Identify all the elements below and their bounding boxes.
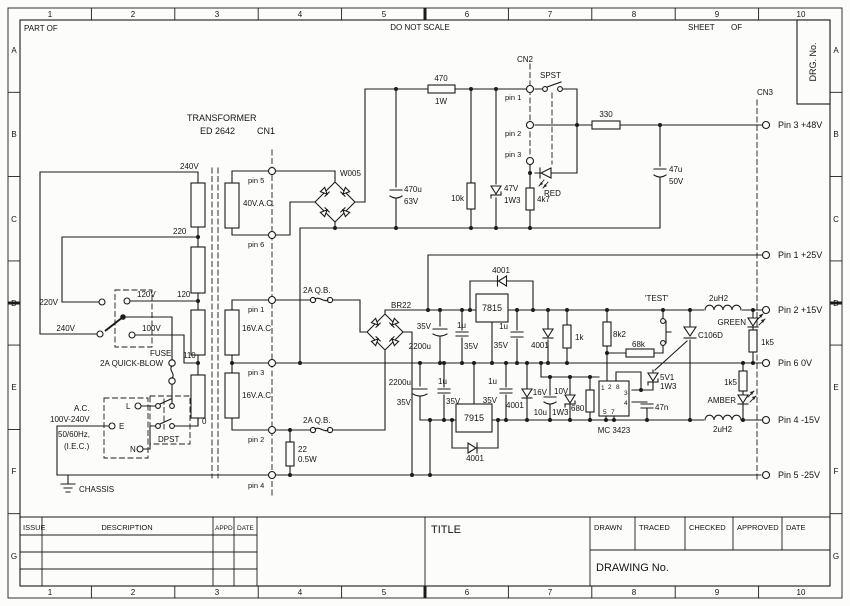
label-z47v: 47V xyxy=(504,184,519,193)
drawing-sheet: 1 2 3 4 5 6 7 8 9 10 1 2 3 4 5 6 7 8 9 1… xyxy=(0,0,850,606)
zone-row-b2: B xyxy=(833,130,838,139)
label-live: L xyxy=(126,402,131,411)
fuse-2a-qb-bottom xyxy=(310,427,332,432)
label-z10v-w: 1W3 xyxy=(552,408,569,417)
label-v35-f: 35V xyxy=(483,396,498,405)
label-fuse-qb-top: 2A Q.B. xyxy=(303,286,331,295)
zone-row-c2: C xyxy=(833,215,839,224)
title-header: TITLE xyxy=(431,524,461,536)
green-led xyxy=(748,314,765,327)
label-neutral: N xyxy=(130,445,136,454)
label-r680: 680 xyxy=(571,404,585,413)
capacitor-47n xyxy=(641,404,653,408)
voltage-selector xyxy=(97,298,135,338)
zone-col-2b: 2 xyxy=(131,588,136,597)
zone-col-7: 7 xyxy=(548,10,553,19)
label-r22: 22 xyxy=(298,445,307,454)
label-ac: A.C. xyxy=(74,404,90,413)
label-tap-240: 240V xyxy=(180,162,199,171)
zone-row-f: F xyxy=(12,467,17,476)
label-4001-a: 4001 xyxy=(492,266,510,275)
zone-col-1b: 1 xyxy=(48,588,53,597)
resistor-22r xyxy=(286,442,294,466)
label-cn2-pin3: pin 3 xyxy=(505,150,521,159)
zone-col-9b: 9 xyxy=(715,588,720,597)
zone-col-5b: 5 xyxy=(382,588,387,597)
label-test: 'TEST' xyxy=(645,294,669,303)
label-v63: 63V xyxy=(404,197,419,206)
label-4001-c: 4001 xyxy=(466,454,484,463)
sheet-label: SHEET xyxy=(688,23,715,32)
label-c47n: 47n xyxy=(655,403,668,412)
capacitor-1u-neg2 xyxy=(500,389,512,393)
description-header: DESCRIPTION xyxy=(101,523,152,532)
resistor-1k5-green xyxy=(749,330,757,352)
zone-row-f2: F xyxy=(834,467,839,476)
label-r68k: 68k xyxy=(632,340,646,349)
zone-col-8b: 8 xyxy=(632,588,637,597)
label-out-m15v: Pin 4 -15V xyxy=(778,415,820,425)
label-r330: 330 xyxy=(599,110,613,119)
circuit-components xyxy=(61,82,770,492)
checked-header: CHECKED xyxy=(689,523,726,532)
label-dpst: DPST xyxy=(158,435,179,444)
label-r22-w: 0.5W xyxy=(298,455,317,464)
label-mc-pin7: 7 xyxy=(611,409,615,416)
label-r10k: 10k xyxy=(451,194,465,203)
date-header: DATE xyxy=(237,525,255,532)
label-cn1: CN1 xyxy=(257,126,275,136)
zone-col-8: 8 xyxy=(632,10,637,19)
label-c47u: 47u xyxy=(669,165,682,174)
zone-col-5: 5 xyxy=(382,10,387,19)
of-label: OF xyxy=(731,23,742,32)
chassis-ground-symbol xyxy=(61,475,75,492)
mains-fuse xyxy=(169,360,175,384)
label-mc-pin5: 5 xyxy=(603,409,607,416)
drawn-header: DRAWN xyxy=(594,523,622,532)
label-cn2-pin1: pin 1 xyxy=(505,93,521,102)
zone-row-e: E xyxy=(11,383,16,392)
label-cn1-pin4: pin 4 xyxy=(248,481,264,490)
inductor-2uh2-bottom xyxy=(704,414,742,425)
resistor-330r xyxy=(592,121,620,129)
label-amber: AMBER xyxy=(708,396,737,405)
zone-col-6b: 6 xyxy=(465,588,470,597)
zone-row-e2: E xyxy=(833,383,838,392)
label-tap-120: 120 xyxy=(177,290,191,299)
diode-4001-neg xyxy=(522,389,532,398)
label-sel-100: 100V xyxy=(142,324,161,333)
label-out-48v: Pin 3 +48V xyxy=(778,120,822,130)
label-c1u-a: 1u xyxy=(457,321,466,330)
transformer-core-line xyxy=(212,168,218,478)
label-ac-range: 100V-240V xyxy=(50,415,90,424)
resistor-4k7 xyxy=(526,188,534,210)
resistor-8k2 xyxy=(603,322,611,346)
fuse-2a-qb-top xyxy=(310,297,332,302)
zone-row-a: A xyxy=(11,46,17,55)
spst-switch xyxy=(543,82,563,91)
circuit-wires xyxy=(40,64,762,495)
label-red: RED xyxy=(544,189,561,198)
schematic-svg: 1 2 3 4 5 6 7 8 9 10 1 2 3 4 5 6 7 8 9 1… xyxy=(0,0,850,606)
zone-row-a2: A xyxy=(833,46,839,55)
label-mc-pin1: 1 xyxy=(601,385,605,392)
label-transformer: TRANSFORMER xyxy=(187,113,257,123)
label-cn2-pin2: pin 2 xyxy=(505,129,521,138)
inductor-2uh2-top xyxy=(704,304,742,315)
drawing-no-label: DRAWING No. xyxy=(596,562,669,574)
capacitor-2200u-neg xyxy=(413,389,427,396)
label-r1k5-green: 1k5 xyxy=(761,338,774,347)
label-cn1-pin5: pin 5 xyxy=(248,176,264,185)
label-c106d: C106D xyxy=(698,331,723,340)
label-fuse-qb-bottom: 2A Q.B. xyxy=(303,416,331,425)
zone-row-c: C xyxy=(11,215,17,224)
label-c2200u-pos: 2200u xyxy=(409,342,431,351)
resistor-68k xyxy=(626,349,654,357)
thyristor-c106d xyxy=(684,327,696,338)
issue-header: ISSUE xyxy=(23,523,46,532)
diode-4001-pos xyxy=(543,329,553,338)
zone-col-6: 6 xyxy=(465,10,470,19)
zone-row-d2: D xyxy=(833,299,839,308)
label-transformer-model: ED 2642 xyxy=(200,126,235,136)
zone-col-1: 1 xyxy=(48,10,53,19)
zone-row-g: G xyxy=(11,552,17,561)
dpst-switch xyxy=(156,399,175,429)
label-7915: 7915 xyxy=(464,413,484,423)
capacitor-1u-pos1 xyxy=(456,332,468,336)
drawing-frame: 1 2 3 4 5 6 7 8 9 10 1 2 3 4 5 6 7 8 9 1… xyxy=(8,8,842,598)
label-2uh2-bottom: 2uH2 xyxy=(713,425,733,434)
label-mc-pin3: 3 xyxy=(624,390,628,397)
label-w005: W005 xyxy=(340,169,361,178)
label-cn1-pin6: pin 6 xyxy=(248,240,264,249)
capacitor-470u-63v xyxy=(390,190,402,198)
zone-row-g2: G xyxy=(833,552,839,561)
label-c470u: 470u xyxy=(404,185,422,194)
capacitor-47u-50v xyxy=(654,169,666,177)
label-r470-w: 1W xyxy=(435,97,447,106)
label-mc3423: MC 3423 xyxy=(598,426,631,435)
label-cn1-pin1: pin 1 xyxy=(248,305,264,314)
label-mc-pin8: 8 xyxy=(616,384,620,391)
label-r470: 470 xyxy=(434,74,448,83)
label-mc-pin2: 2 xyxy=(608,384,612,391)
traced-header: TRACED xyxy=(639,523,670,532)
label-cn1-pin3: pin 3 xyxy=(248,368,264,377)
resistor-1k5-amber xyxy=(739,371,747,391)
label-tap-110: 110 xyxy=(183,351,196,360)
resistor-1k xyxy=(563,325,571,348)
label-z47v-w: 1W3 xyxy=(504,196,521,205)
label-7815: 7815 xyxy=(482,303,502,313)
test-button xyxy=(661,319,671,346)
label-br22: BR22 xyxy=(391,301,412,310)
zone-col-3: 3 xyxy=(215,10,220,19)
label-z5v1: 5V1 xyxy=(660,373,675,382)
amber-led xyxy=(738,391,756,404)
label-w16a: 16V.A.C. xyxy=(242,324,273,333)
approved-header: APPROVED xyxy=(737,523,779,532)
diode-4001-7915-bypass xyxy=(468,443,477,453)
label-ac-std: (I.E.C.) xyxy=(64,442,90,451)
label-cn1-pin2: pin 2 xyxy=(248,435,264,444)
label-v35-e: 35V xyxy=(446,397,461,406)
label-c10u: 10u xyxy=(534,408,547,417)
title-block: ISSUE DESCRIPTION APPD DATE TITLE DRAWN … xyxy=(20,517,830,586)
label-4001-b: 4001 xyxy=(531,341,549,350)
label-r8k2: 8k2 xyxy=(613,330,626,339)
label-chassis: CHASSIS xyxy=(79,485,114,494)
label-z10v: 10V xyxy=(554,387,569,396)
label-sel-120: 120V xyxy=(137,290,156,299)
zone-row-d: D xyxy=(11,299,17,308)
label-sel-220: 220V xyxy=(39,298,58,307)
bridge-rectifier-br22 xyxy=(367,314,403,350)
part-of-label: PART OF xyxy=(24,24,58,33)
label-mc-pin4: 4 xyxy=(624,400,628,407)
label-out-25v: Pin 1 +25V xyxy=(778,250,822,260)
label-green: GREEN xyxy=(718,318,747,327)
label-tap-0: 0 xyxy=(202,417,207,426)
zone-col-3b: 3 xyxy=(215,588,220,597)
zone-col-7b: 7 xyxy=(548,588,553,597)
appd-header: APPD xyxy=(215,525,233,532)
resistor-10k xyxy=(467,183,475,209)
zone-col-9: 9 xyxy=(715,10,720,19)
label-out-0v: Pin 6 0V xyxy=(778,358,812,368)
label-fuse-rating: 2A QUICK-BLOW xyxy=(100,359,164,368)
label-earth: E xyxy=(119,422,124,431)
label-out-15v: Pin 2 +15V xyxy=(778,305,822,315)
label-z5v1-w: 1W3 xyxy=(660,382,677,391)
zone-col-4: 4 xyxy=(298,10,303,19)
label-ac-freq: 50/60Hz, xyxy=(58,430,90,439)
bridge-rectifier-w005 xyxy=(315,182,355,222)
do-not-scale-label: DO NOT SCALE xyxy=(390,23,449,32)
label-c2200u-neg: 2200u xyxy=(389,378,411,387)
capacitor-1u-pos2 xyxy=(511,332,523,337)
label-r1k5-amber: 1k5 xyxy=(724,378,737,387)
capacitor-1u-neg1 xyxy=(438,389,450,393)
drg-no-label: DRG. No. xyxy=(808,42,818,81)
label-cn3: CN3 xyxy=(757,88,774,97)
label-sel-240: 240V xyxy=(56,324,75,333)
resistor-680r xyxy=(586,390,594,412)
zone-row-b: B xyxy=(11,130,16,139)
label-tap-220: 220 xyxy=(173,227,187,236)
cn3-connector-pins xyxy=(763,122,770,479)
zener-47v-1w3 xyxy=(491,186,501,198)
label-c1u-b: 1u xyxy=(499,322,508,331)
label-v35-a: 35V xyxy=(417,322,432,331)
diode-4001-7815-bypass xyxy=(498,276,507,286)
capacitor-2200u-pos xyxy=(433,329,447,336)
label-v35-d: 35V xyxy=(397,398,412,407)
zone-col-10b: 10 xyxy=(797,588,806,597)
label-c1u-d: 1u xyxy=(488,377,497,386)
label-v35-c: 35V xyxy=(494,341,509,350)
zone-col-2: 2 xyxy=(131,10,136,19)
label-4001-d: 4001 xyxy=(506,401,524,410)
label-v50: 50V xyxy=(669,177,684,186)
label-w16b: 16V.A.C. xyxy=(242,391,273,400)
label-fuse: FUSE xyxy=(150,349,171,358)
date2-header: DATE xyxy=(786,523,805,532)
zone-col-10: 10 xyxy=(797,10,806,19)
label-out-m25v: Pin 5 -25V xyxy=(778,470,820,480)
label-v16: 16V xyxy=(533,388,548,397)
resistor-470r xyxy=(428,85,455,93)
transformer-primary-windings xyxy=(191,183,205,426)
label-c1u-c: 1u xyxy=(438,377,447,386)
label-cn2: CN2 xyxy=(517,55,534,64)
red-led xyxy=(539,168,551,188)
label-spst: SPST xyxy=(540,71,561,80)
zone-col-4b: 4 xyxy=(298,588,303,597)
label-r1k: 1k xyxy=(575,333,584,342)
label-w40: 40V.A.C. xyxy=(243,199,274,208)
label-v35-b: 35V xyxy=(464,342,479,351)
label-2uh2-top: 2uH2 xyxy=(709,294,729,303)
capacitor-10u-16v xyxy=(544,397,556,404)
